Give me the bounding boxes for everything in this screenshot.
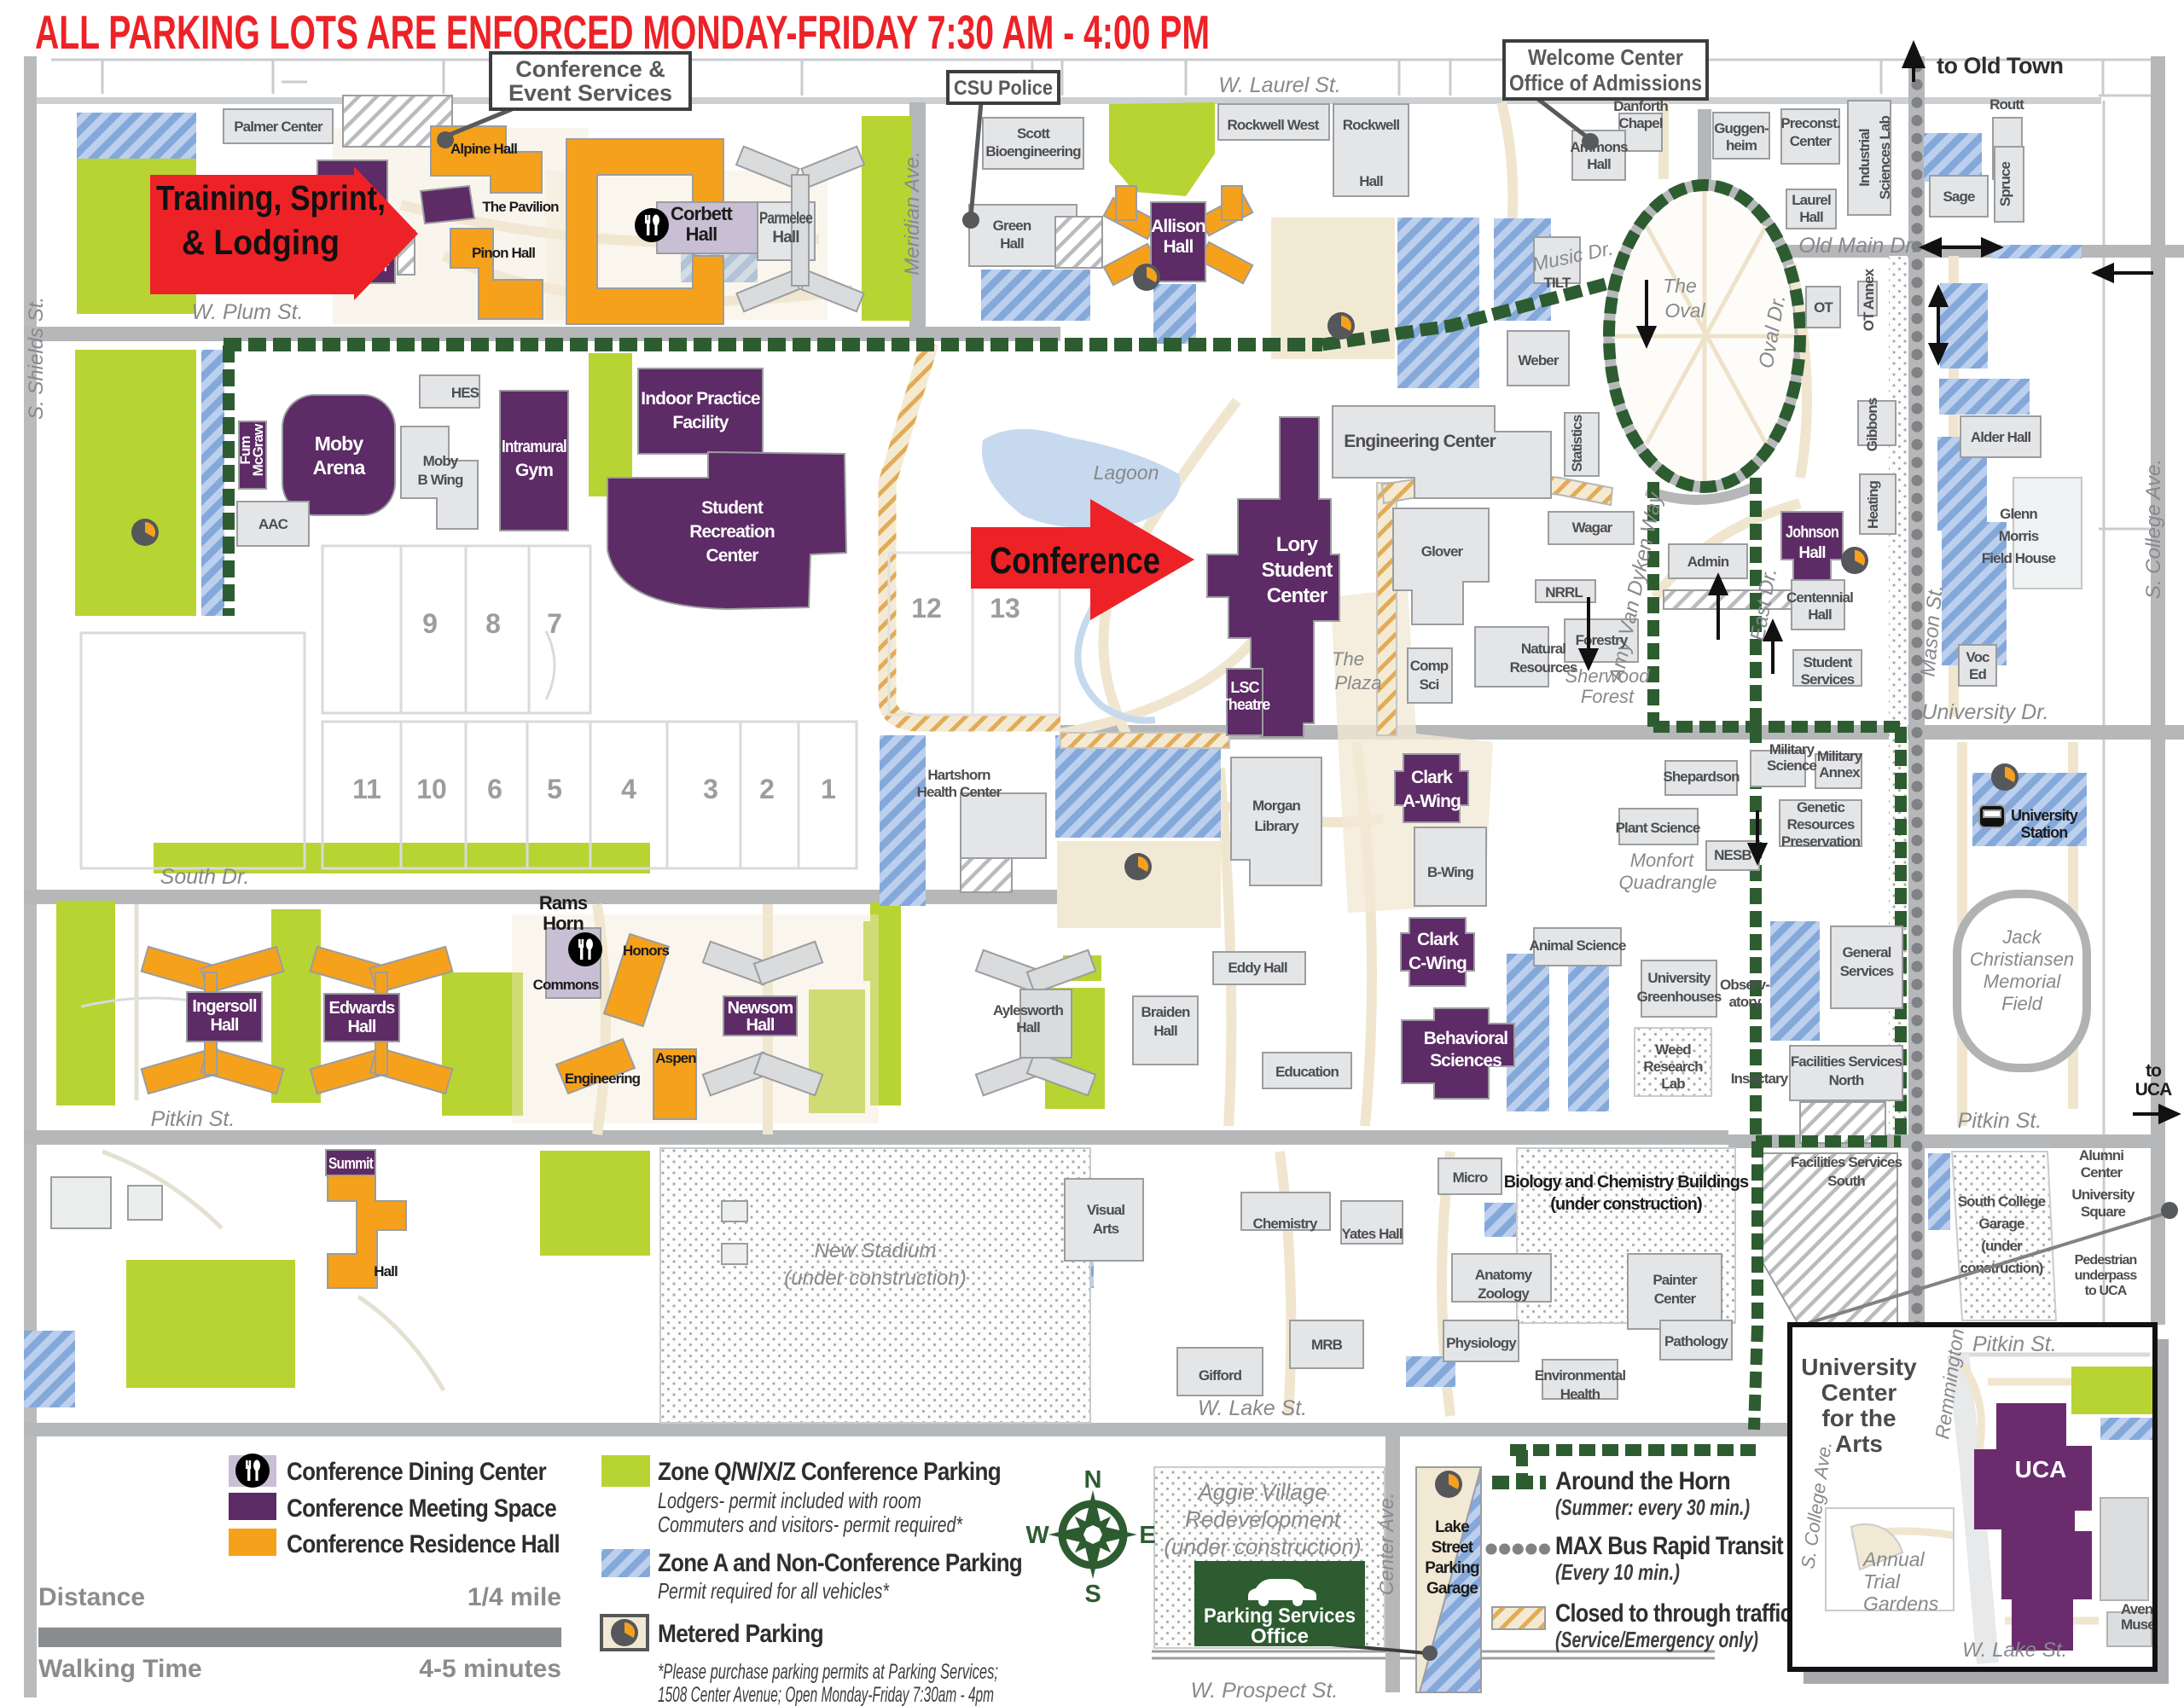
svg-text:LSC: LSC bbox=[1230, 679, 1259, 696]
svg-text:Lagoon: Lagoon bbox=[1094, 461, 1159, 484]
svg-text:Services: Services bbox=[1801, 671, 1855, 688]
svg-text:University: University bbox=[2071, 1187, 2135, 1203]
svg-text:Student: Student bbox=[701, 498, 764, 518]
svg-text:W. Plum St.: W. Plum St. bbox=[191, 300, 303, 324]
svg-text:Old Main Dr.: Old Main Dr. bbox=[1798, 234, 1917, 258]
svg-text:(under construction): (under construction) bbox=[784, 1267, 966, 1290]
svg-text:Biology and Chemistry Build: Biology and Chemistry Buildings bbox=[1504, 1173, 1749, 1192]
svg-text:Gym: Gym bbox=[515, 461, 553, 480]
svg-text:(under: (under bbox=[1981, 1238, 2023, 1254]
svg-text:Around the Horn: Around the Horn bbox=[1555, 1467, 1730, 1495]
svg-text:Garage: Garage bbox=[1978, 1216, 2024, 1232]
svg-text:Forestry: Forestry bbox=[1576, 632, 1629, 648]
svg-text:7: 7 bbox=[547, 608, 562, 639]
svg-text:Conference Meeting Space: Conference Meeting Space bbox=[287, 1494, 556, 1523]
svg-text:Behavioral: Behavioral bbox=[1424, 1029, 1507, 1048]
svg-text:Center: Center bbox=[2081, 1164, 2123, 1181]
svg-text:to Old Town: to Old Town bbox=[1937, 53, 2063, 78]
svg-text:S. College Ave.: S. College Ave. bbox=[2142, 459, 2165, 599]
svg-text:(Summer: every 30 min.): (Summer: every 30 min.) bbox=[1555, 1494, 1750, 1520]
svg-text:8: 8 bbox=[485, 608, 501, 639]
svg-text:Parking Services: Parking Services bbox=[1204, 1604, 1356, 1628]
svg-text:Ed: Ed bbox=[1969, 666, 1986, 682]
svg-text:Pedestrian: Pedestrian bbox=[2075, 1253, 2137, 1268]
svg-text:Ingersoll: Ingersoll bbox=[192, 997, 257, 1016]
svg-text:W. Laurel St.: W. Laurel St. bbox=[1218, 73, 1341, 97]
svg-text:Centennial: Centennial bbox=[1786, 589, 1853, 606]
svg-text:Anatomy: Anatomy bbox=[1475, 1267, 1533, 1283]
svg-text:Commons: Commons bbox=[533, 977, 599, 993]
svg-text:Rockwell: Rockwell bbox=[1343, 117, 1400, 133]
svg-text:Edwards: Edwards bbox=[328, 999, 395, 1018]
svg-text:Engineering: Engineering bbox=[565, 1071, 641, 1087]
svg-text:Allison: Allison bbox=[1151, 217, 1205, 236]
svg-text:Trial: Trial bbox=[1863, 1570, 1901, 1593]
svg-text:3: 3 bbox=[703, 774, 718, 804]
svg-text:Center: Center bbox=[706, 546, 758, 566]
svg-text:Hall: Hall bbox=[1808, 606, 1832, 623]
svg-text:1: 1 bbox=[821, 774, 836, 804]
svg-text:Green: Green bbox=[993, 218, 1031, 234]
svg-text:Routt: Routt bbox=[1989, 96, 2024, 113]
svg-text:Visual: Visual bbox=[1087, 1202, 1125, 1218]
svg-text:to UCA: to UCA bbox=[2085, 1284, 2128, 1298]
svg-text:Clark: Clark bbox=[1411, 768, 1453, 787]
svg-text:Pitkin St.: Pitkin St. bbox=[1958, 1109, 2042, 1133]
svg-text:1/4 mile: 1/4 mile bbox=[468, 1583, 561, 1611]
svg-text:Greenhouses: Greenhouses bbox=[1637, 989, 1722, 1005]
svg-text:The Pavilion: The Pavilion bbox=[482, 199, 559, 215]
svg-text:Weed: Weed bbox=[1655, 1042, 1691, 1058]
svg-text:(under construction): (under construction) bbox=[1550, 1195, 1702, 1214]
svg-text:Weber: Weber bbox=[1518, 352, 1559, 368]
svg-text:New Stadium: New Stadium bbox=[815, 1239, 937, 1262]
svg-text:Insectary: Insectary bbox=[1731, 1071, 1789, 1087]
svg-text:Christiansen: Christiansen bbox=[1970, 949, 2074, 970]
svg-text:Scott: Scott bbox=[1017, 125, 1050, 142]
svg-text:Closed to through traffic: Closed to through traffic bbox=[1555, 1599, 1792, 1628]
svg-text:Sage: Sage bbox=[1943, 189, 1974, 205]
svg-text:OT: OT bbox=[1814, 299, 1833, 316]
svg-text:South College: South College bbox=[1958, 1193, 2046, 1210]
svg-text:B Wing: B Wing bbox=[418, 472, 464, 488]
svg-text:Hall: Hall bbox=[772, 229, 799, 247]
svg-text:Street: Street bbox=[1432, 1539, 1474, 1557]
svg-text:5: 5 bbox=[547, 774, 562, 804]
svg-text:(Every 10 min.): (Every 10 min.) bbox=[1555, 1559, 1680, 1585]
svg-text:Alder Hall: Alder Hall bbox=[1971, 429, 2031, 445]
svg-text:Station: Station bbox=[2021, 824, 2068, 841]
svg-text:Preconst.: Preconst. bbox=[1780, 115, 1840, 131]
svg-text:Parmelee: Parmelee bbox=[759, 210, 812, 228]
svg-text:Military: Military bbox=[1817, 748, 1863, 764]
svg-text:University Dr.: University Dr. bbox=[1921, 700, 2048, 724]
svg-text:Field: Field bbox=[2001, 993, 2042, 1014]
svg-text:atory: atory bbox=[1728, 994, 1762, 1010]
svg-text:W: W bbox=[1025, 1522, 1049, 1549]
svg-text:Morris: Morris bbox=[1999, 528, 2039, 544]
svg-text:The: The bbox=[1332, 648, 1364, 670]
svg-text:E: E bbox=[1139, 1522, 1155, 1549]
svg-text:Commuters and visitors- permit: Commuters and visitors- permit required* bbox=[658, 1512, 963, 1537]
svg-text:Center: Center bbox=[1790, 133, 1833, 149]
svg-text:to: to bbox=[2146, 1061, 2161, 1081]
svg-text:Lab: Lab bbox=[1661, 1076, 1685, 1092]
svg-text:Parking: Parking bbox=[1425, 1559, 1479, 1577]
svg-text:underpass: underpass bbox=[2075, 1268, 2138, 1283]
svg-text:Library: Library bbox=[1254, 818, 1299, 834]
svg-text:Hall: Hall bbox=[347, 1018, 375, 1036]
svg-text:Hall: Hall bbox=[210, 1016, 238, 1035]
svg-text:Lodgers- permit included with: Lodgers- permit included with room bbox=[658, 1488, 921, 1513]
svg-text:South: South bbox=[1827, 1173, 1865, 1189]
svg-text:South Dr.: South Dr. bbox=[160, 865, 250, 889]
svg-text:Services: Services bbox=[1840, 963, 1894, 979]
svg-text:A-Wing: A-Wing bbox=[1403, 792, 1461, 811]
svg-text:Hall: Hall bbox=[1359, 173, 1383, 189]
svg-text:Facilities Services: Facilities Services bbox=[1791, 1154, 1902, 1170]
svg-text:Hall: Hall bbox=[374, 1263, 398, 1279]
svg-text:Spruce: Spruce bbox=[1997, 161, 2013, 206]
svg-text:NESB: NESB bbox=[1714, 847, 1751, 863]
svg-text:Pitkin St.: Pitkin St. bbox=[151, 1107, 235, 1131]
svg-text:(under construction): (under construction) bbox=[1164, 1534, 1361, 1559]
svg-text:Rockwell West: Rockwell West bbox=[1227, 117, 1319, 133]
svg-text:10: 10 bbox=[416, 774, 447, 804]
svg-text:Conference &: Conference & bbox=[515, 56, 665, 82]
svg-text:2: 2 bbox=[759, 774, 775, 804]
svg-text:OT Annex: OT Annex bbox=[1861, 268, 1877, 331]
svg-text:Conference: Conference bbox=[990, 540, 1160, 582]
svg-text:Environmental: Environmental bbox=[1535, 1367, 1626, 1384]
svg-text:Arena: Arena bbox=[313, 456, 366, 479]
svg-text:North: North bbox=[1829, 1072, 1864, 1088]
svg-text:Office of Admissions: Office of Admissions bbox=[1509, 70, 1702, 96]
svg-text:& Lodging: & Lodging bbox=[182, 223, 340, 262]
svg-text:Statistics: Statistics bbox=[1569, 415, 1585, 472]
svg-text:for the: for the bbox=[1821, 1405, 1896, 1431]
svg-text:Forest: Forest bbox=[1581, 686, 1635, 707]
svg-text:Training, Sprint,: Training, Sprint, bbox=[156, 178, 386, 218]
svg-text:Newsom: Newsom bbox=[728, 999, 793, 1018]
svg-text:Student: Student bbox=[1804, 654, 1853, 670]
svg-text:Natural: Natural bbox=[1521, 641, 1565, 657]
svg-text:The: The bbox=[1663, 275, 1697, 297]
svg-text:Painter: Painter bbox=[1653, 1272, 1698, 1288]
svg-text:4: 4 bbox=[621, 774, 636, 804]
svg-text:AAC: AAC bbox=[258, 516, 288, 532]
svg-text:Center: Center bbox=[1821, 1379, 1897, 1406]
svg-text:Heating: Heating bbox=[1865, 480, 1881, 529]
svg-text:Hall: Hall bbox=[1000, 235, 1024, 252]
svg-text:heim: heim bbox=[1726, 137, 1757, 154]
svg-text:4-5 minutes: 4-5 minutes bbox=[419, 1655, 561, 1683]
svg-text:Chapel: Chapel bbox=[1618, 115, 1662, 131]
svg-text:Honors: Honors bbox=[623, 943, 670, 959]
svg-text:Aspen: Aspen bbox=[655, 1050, 696, 1066]
svg-text:University: University bbox=[1801, 1354, 1917, 1380]
svg-text:Education: Education bbox=[1275, 1064, 1339, 1080]
svg-text:Gifford: Gifford bbox=[1199, 1367, 1242, 1384]
svg-text:Arts: Arts bbox=[1835, 1430, 1883, 1457]
svg-text:Alpine Hall: Alpine Hall bbox=[450, 141, 517, 157]
svg-text:Meridian Ave.: Meridian Ave. bbox=[901, 151, 924, 275]
svg-text:NRRL: NRRL bbox=[1545, 584, 1583, 601]
svg-text:*Please purchase parking permi: *Please purchase parking permits at Park… bbox=[658, 1660, 998, 1684]
svg-text:Square: Square bbox=[2081, 1204, 2126, 1220]
svg-text:Student: Student bbox=[1261, 559, 1333, 582]
svg-text:Conference Dining Center: Conference Dining Center bbox=[287, 1458, 547, 1486]
svg-text:Morgan: Morgan bbox=[1252, 798, 1301, 814]
svg-text:W. Lake St.: W. Lake St. bbox=[1198, 1396, 1307, 1420]
svg-text:Health Center: Health Center bbox=[917, 784, 1002, 800]
svg-text:Redevelopment: Redevelopment bbox=[1185, 1506, 1342, 1532]
svg-text:C-Wing: C-Wing bbox=[1409, 954, 1467, 973]
svg-text:Resources: Resources bbox=[1787, 816, 1855, 833]
svg-text:Shepardson: Shepardson bbox=[1663, 769, 1740, 785]
svg-text:Hartshorn: Hartshorn bbox=[927, 767, 990, 783]
svg-text:Braiden: Braiden bbox=[1141, 1004, 1191, 1020]
svg-text:Chemistry: Chemistry bbox=[1252, 1216, 1317, 1232]
svg-text:Hall: Hall bbox=[1799, 209, 1823, 225]
svg-text:Alumni: Alumni bbox=[2079, 1147, 2123, 1163]
svg-text:Yates Hall: Yates Hall bbox=[1341, 1226, 1403, 1242]
svg-text:Aggie Village: Aggie Village bbox=[1196, 1479, 1327, 1505]
svg-text:Animal Science: Animal Science bbox=[1529, 937, 1626, 954]
svg-text:Observ-: Observ- bbox=[1720, 977, 1769, 993]
svg-text:S. Shields St.: S. Shields St. bbox=[25, 297, 48, 420]
svg-text:Micro: Micro bbox=[1453, 1169, 1488, 1186]
svg-text:Annex: Annex bbox=[1819, 764, 1861, 780]
svg-text:University: University bbox=[2011, 807, 2078, 824]
svg-text:Ammons: Ammons bbox=[1570, 139, 1628, 155]
svg-text:9: 9 bbox=[422, 608, 438, 639]
svg-text:Oval: Oval bbox=[1664, 299, 1705, 322]
svg-text:Hall: Hall bbox=[1798, 544, 1825, 562]
svg-text:TILT: TILT bbox=[1543, 275, 1571, 291]
svg-text:Hall: Hall bbox=[1016, 1019, 1040, 1036]
svg-text:Zoology: Zoology bbox=[1478, 1285, 1530, 1302]
svg-text:Health: Health bbox=[1560, 1386, 1600, 1402]
svg-text:Guggen-: Guggen- bbox=[1714, 120, 1769, 136]
svg-text:Theatre: Theatre bbox=[1220, 696, 1271, 713]
svg-text:Welcome Center: Welcome Center bbox=[1528, 44, 1683, 70]
svg-text:W. Lake St.: W. Lake St. bbox=[1962, 1639, 2067, 1662]
svg-text:Monfort: Monfort bbox=[1630, 850, 1694, 871]
svg-text:13: 13 bbox=[990, 593, 1020, 624]
svg-text:Jack: Jack bbox=[2001, 926, 2042, 948]
svg-text:Hall: Hall bbox=[686, 223, 717, 245]
svg-text:Center Ave.: Center Ave. bbox=[1375, 1493, 1397, 1595]
svg-text:Science: Science bbox=[1767, 757, 1816, 774]
svg-text:Facilities Services: Facilities Services bbox=[1791, 1053, 1902, 1070]
svg-text:Lory: Lory bbox=[1276, 533, 1319, 556]
svg-text:N: N bbox=[1084, 1466, 1102, 1494]
svg-text:Sciences Lab: Sciences Lab bbox=[1877, 116, 1893, 200]
svg-text:General: General bbox=[1842, 944, 1891, 960]
svg-text:HES: HES bbox=[451, 385, 479, 401]
svg-text:Annual: Annual bbox=[1862, 1548, 1926, 1570]
svg-text:W. Prospect St.: W. Prospect St. bbox=[1191, 1679, 1339, 1703]
svg-text:Gardens: Gardens bbox=[1863, 1593, 1939, 1615]
svg-text:Summit: Summit bbox=[328, 1155, 374, 1172]
svg-text:B-Wing: B-Wing bbox=[1427, 864, 1473, 880]
svg-text:Center: Center bbox=[1267, 584, 1327, 607]
svg-text:Hall: Hall bbox=[1164, 237, 1194, 257]
svg-text:CSU Police: CSU Police bbox=[954, 77, 1053, 100]
svg-text:Bioengineering: Bioengineering bbox=[985, 143, 1081, 160]
svg-text:Plant Science: Plant Science bbox=[1616, 820, 1700, 836]
svg-text:Preservation: Preservation bbox=[1781, 833, 1861, 850]
svg-text:Johnson: Johnson bbox=[1786, 524, 1838, 542]
svg-text:Facility: Facility bbox=[672, 413, 729, 432]
svg-text:Pathology: Pathology bbox=[1664, 1333, 1729, 1349]
svg-text:Distance: Distance bbox=[38, 1583, 145, 1611]
svg-text:Center: Center bbox=[1654, 1291, 1697, 1307]
svg-text:Laurel: Laurel bbox=[1792, 192, 1831, 208]
svg-text:Clark: Clark bbox=[1417, 930, 1459, 949]
svg-text:6: 6 bbox=[487, 774, 502, 804]
svg-text:Intramural: Intramural bbox=[502, 438, 566, 456]
svg-text:Engineering Center: Engineering Center bbox=[1344, 432, 1496, 451]
svg-text:Sci: Sci bbox=[1420, 676, 1439, 693]
svg-text:Glenn: Glenn bbox=[2000, 506, 2037, 522]
svg-text:Indoor Practice: Indoor Practice bbox=[641, 389, 760, 409]
svg-text:ALL PARKING LOTS ARE ENFORCED: ALL PARKING LOTS ARE ENFORCED MONDAY-FRI… bbox=[35, 5, 1210, 59]
svg-text:Sherwood: Sherwood bbox=[1565, 665, 1650, 687]
svg-text:Zone A and Non-Conference Park: Zone A and Non-Conference Parking bbox=[658, 1549, 1022, 1577]
svg-text:Pinon Hall: Pinon Hall bbox=[472, 245, 535, 261]
svg-text:University: University bbox=[1647, 970, 1711, 986]
svg-text:Conference Residence Hall: Conference Residence Hall bbox=[287, 1530, 560, 1558]
svg-text:Gibbons: Gibbons bbox=[1864, 397, 1880, 451]
svg-text:Garage: Garage bbox=[1426, 1580, 1478, 1598]
svg-text:Lake: Lake bbox=[1435, 1518, 1469, 1536]
svg-text:Hall: Hall bbox=[746, 1016, 774, 1035]
svg-text:Sciences: Sciences bbox=[1430, 1051, 1501, 1071]
svg-text:Voc: Voc bbox=[1966, 649, 1989, 665]
svg-text:Moby: Moby bbox=[315, 432, 364, 455]
svg-text:McGraw: McGraw bbox=[250, 423, 266, 476]
svg-text:Arts: Arts bbox=[1093, 1221, 1119, 1237]
svg-text:12: 12 bbox=[911, 593, 942, 624]
svg-text:Hall: Hall bbox=[1587, 156, 1611, 172]
svg-text:Admin: Admin bbox=[1687, 554, 1729, 570]
svg-text:UCA: UCA bbox=[2015, 1456, 2067, 1483]
svg-text:Metered Parking: Metered Parking bbox=[658, 1620, 823, 1648]
svg-text:MRB: MRB bbox=[1311, 1337, 1343, 1353]
svg-text:Palmer Center: Palmer Center bbox=[234, 119, 323, 135]
svg-text:Hall: Hall bbox=[1153, 1023, 1177, 1039]
svg-text:S: S bbox=[1084, 1581, 1101, 1608]
svg-text:Moby: Moby bbox=[423, 453, 459, 469]
svg-text:Corbett: Corbett bbox=[671, 203, 733, 224]
svg-text:Physiology: Physiology bbox=[1446, 1335, 1517, 1351]
svg-text:MAX Bus Rapid Transit: MAX Bus Rapid Transit bbox=[1555, 1532, 1784, 1560]
svg-text:11: 11 bbox=[352, 774, 381, 804]
svg-text:Office: Office bbox=[1251, 1625, 1309, 1648]
svg-text:Plaza: Plaza bbox=[1334, 672, 1381, 693]
svg-text:Memorial: Memorial bbox=[1984, 971, 2062, 992]
svg-text:(Service/Emergency only): (Service/Emergency only) bbox=[1555, 1627, 1758, 1652]
svg-text:UCA: UCA bbox=[2135, 1080, 2173, 1100]
svg-text:Comp: Comp bbox=[1410, 658, 1449, 674]
svg-text:Permit required for all vehicl: Permit required for all vehicles* bbox=[658, 1578, 890, 1604]
svg-text:Wagar: Wagar bbox=[1572, 519, 1613, 536]
svg-text:Quadrangle: Quadrangle bbox=[1619, 872, 1717, 893]
svg-text:Event Services: Event Services bbox=[508, 80, 672, 106]
svg-text:Zone Q/W/X/Z Conference Parkin: Zone Q/W/X/Z Conference Parking bbox=[658, 1458, 1001, 1486]
svg-text:Aylesworth: Aylesworth bbox=[993, 1002, 1064, 1018]
svg-text:Rams: Rams bbox=[539, 892, 588, 914]
svg-text:Field House: Field House bbox=[1982, 550, 2056, 566]
svg-text:Walking Time: Walking Time bbox=[38, 1655, 202, 1683]
svg-text:1508 Center Avenue; Open Monda: 1508 Center Avenue; Open Monday-Friday 7… bbox=[658, 1683, 994, 1706]
svg-text:Pitkin St.: Pitkin St. bbox=[1972, 1332, 2057, 1356]
svg-text:Horn: Horn bbox=[543, 913, 584, 934]
svg-text:Eddy Hall: Eddy Hall bbox=[1228, 960, 1287, 976]
svg-text:Genetic: Genetic bbox=[1797, 799, 1845, 815]
svg-text:Military: Military bbox=[1769, 741, 1815, 757]
svg-text:Industrial: Industrial bbox=[1856, 129, 1873, 187]
svg-text:Glover: Glover bbox=[1421, 543, 1464, 560]
svg-text:Recreation: Recreation bbox=[689, 522, 775, 542]
svg-text:Research: Research bbox=[1643, 1059, 1703, 1075]
